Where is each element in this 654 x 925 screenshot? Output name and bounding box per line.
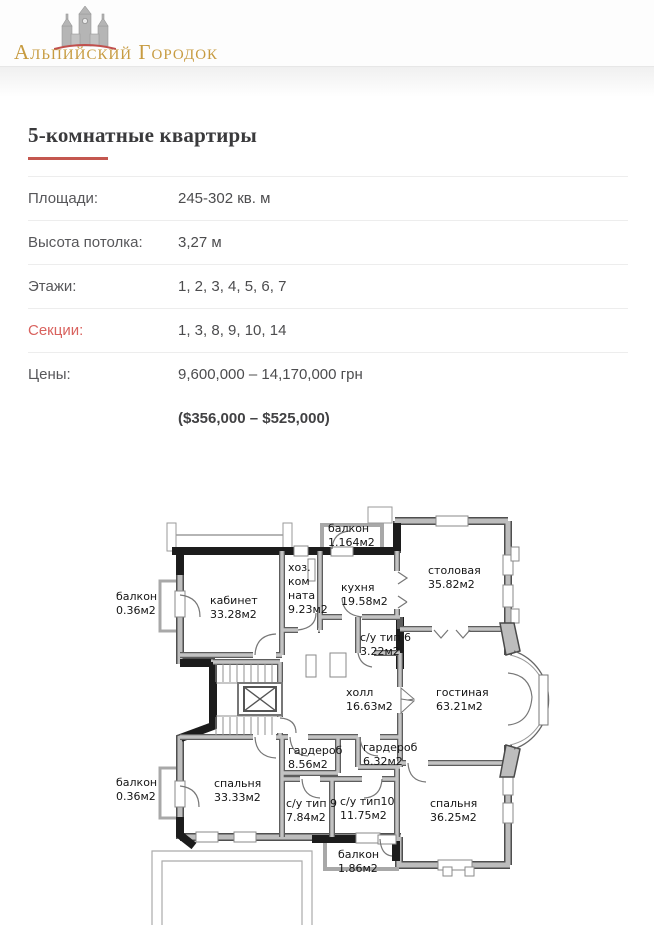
specs-table: Площади:245-302 кв. мВысота потолка:3,27… bbox=[28, 176, 628, 396]
spec-label: Площади: bbox=[28, 190, 178, 207]
spec-label: Этажи: bbox=[28, 278, 178, 295]
main-content: 5-комнатные квартиры Площади:245-302 кв.… bbox=[0, 123, 654, 427]
header-divider bbox=[0, 67, 654, 97]
spec-row: Этажи:1, 2, 3, 4, 5, 6, 7 bbox=[28, 264, 628, 308]
room-label: спальня 33.33м2 bbox=[214, 777, 261, 805]
floorplan-drawing bbox=[110, 505, 550, 925]
logo[interactable]: Альпийский Городок bbox=[14, 4, 244, 64]
room-label: гардероб 8.56м2 bbox=[288, 744, 342, 772]
spec-value: 1, 2, 3, 4, 5, 6, 7 bbox=[178, 278, 286, 295]
spec-row: Высота потолка:3,27 м bbox=[28, 220, 628, 264]
spec-value: 9,600,000 – 14,170,000 грн bbox=[178, 366, 363, 383]
room-label: гардероб 6.32м2 bbox=[363, 741, 417, 769]
room-label: кухня 19.58м2 bbox=[341, 581, 388, 609]
spec-label: Цены: bbox=[28, 366, 178, 383]
room-label: холл 16.63м2 bbox=[346, 686, 393, 714]
spec-label: Высота потолка: bbox=[28, 234, 178, 251]
spec-value: 3,27 м bbox=[178, 234, 222, 251]
spec-value: 1, 3, 8, 9, 10, 14 bbox=[178, 322, 286, 339]
room-label: хоз. ком ната 9.23м2 bbox=[288, 561, 328, 617]
room-label: балкон 0.36м2 bbox=[116, 776, 157, 804]
spec-row: Цены:9,600,000 – 14,170,000 грн bbox=[28, 352, 628, 396]
room-label: гостиная 63.21м2 bbox=[436, 686, 489, 714]
room-label: столовая 35.82м2 bbox=[428, 564, 481, 592]
spec-row: Секции:1, 3, 8, 9, 10, 14 bbox=[28, 308, 628, 352]
room-label: кабинет 33.28м2 bbox=[210, 594, 258, 622]
spec-row: Площади:245-302 кв. м bbox=[28, 176, 628, 220]
spec-label[interactable]: Секции: bbox=[28, 322, 178, 339]
room-label: балкон 1.164м2 bbox=[328, 522, 375, 550]
logo-text: Альпийский Городок bbox=[14, 40, 218, 65]
room-label: балкон 0.36м2 bbox=[116, 590, 157, 618]
spec-value: 245-302 кв. м bbox=[178, 190, 270, 207]
room-label: спальня 36.25м2 bbox=[430, 797, 477, 825]
room-label: с/у тип 6 3.22м2 bbox=[360, 631, 411, 659]
site-header: Альпийский Городок bbox=[0, 0, 654, 67]
room-label: с/у тип10 11.75м2 bbox=[340, 795, 395, 823]
room-label: с/у тип 9 7.84м2 bbox=[286, 797, 337, 825]
floorplan: балкон 0.36м2кабинет 33.28м2хоз. ком нат… bbox=[110, 505, 550, 925]
page-title: 5-комнатные квартиры bbox=[28, 123, 626, 148]
room-label: балкон 1.86м2 bbox=[338, 848, 379, 876]
title-accent-line bbox=[28, 157, 108, 160]
usd-price: ($356,000 – $525,000) bbox=[178, 410, 626, 427]
